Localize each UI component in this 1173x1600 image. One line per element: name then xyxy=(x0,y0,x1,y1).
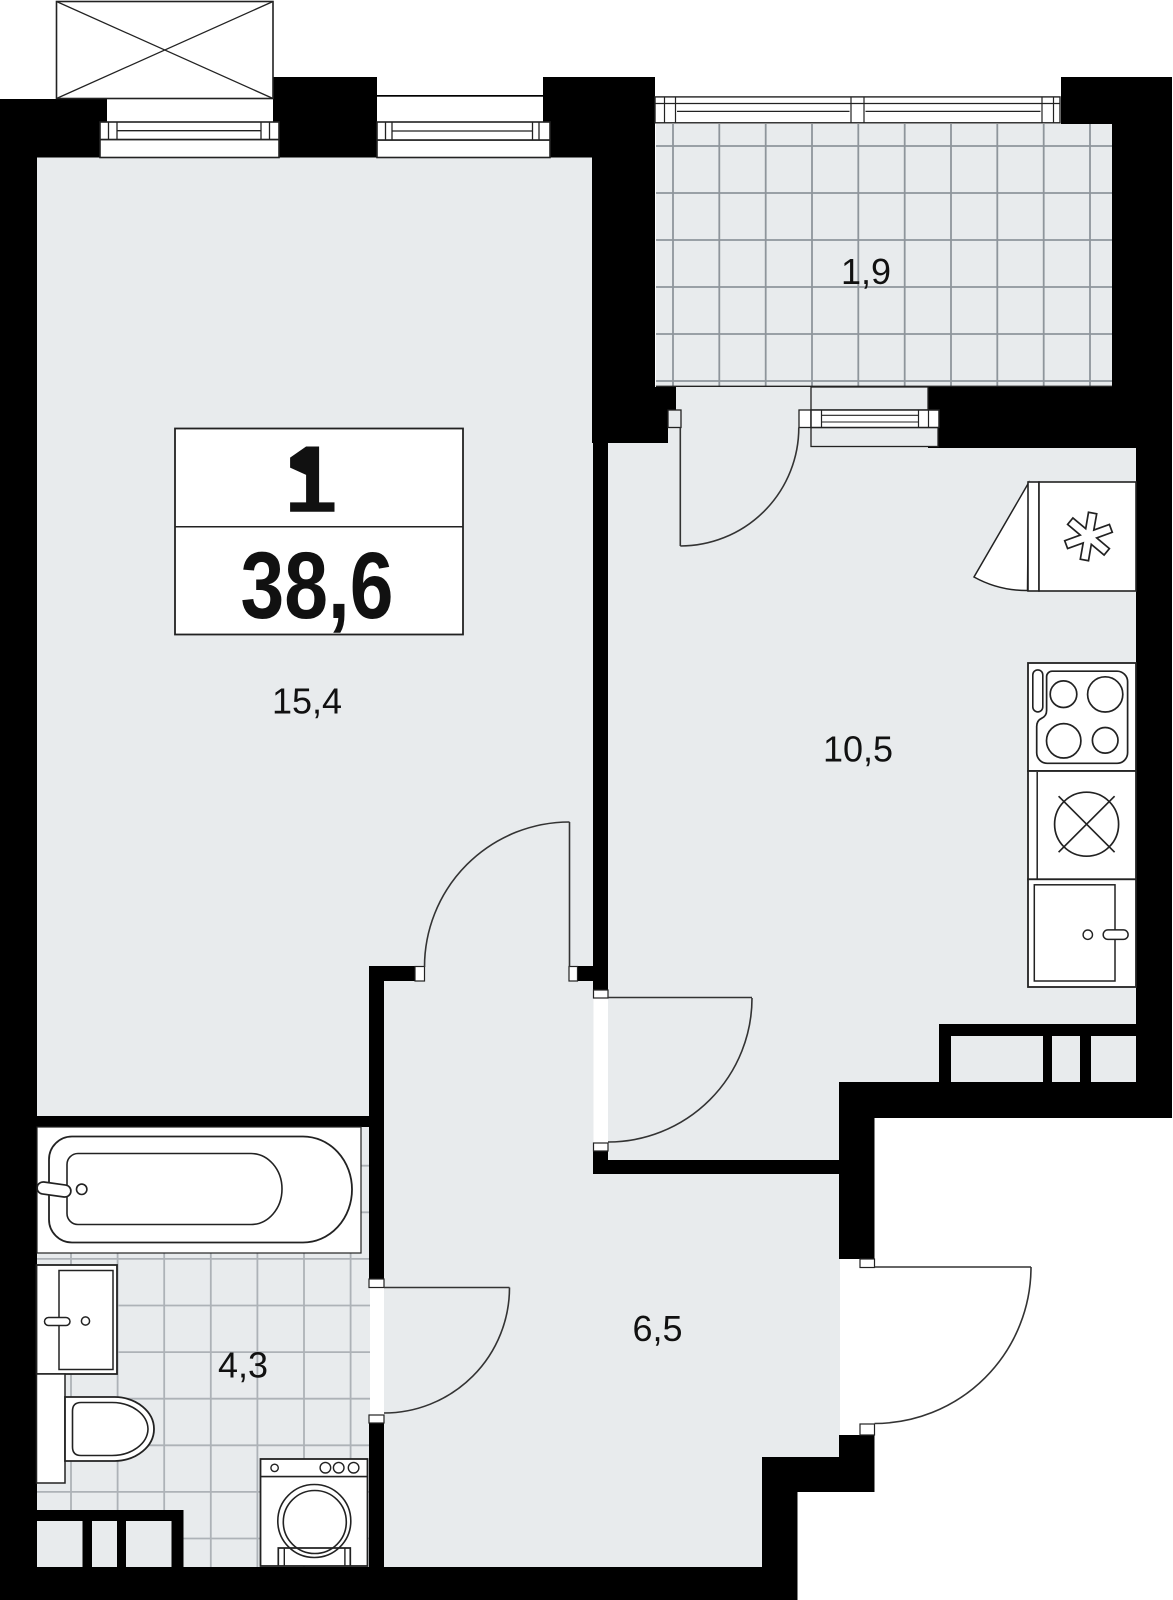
svg-text:1,9: 1,9 xyxy=(841,251,891,292)
svg-text:4,3: 4,3 xyxy=(218,1345,268,1386)
svg-text:38,6: 38,6 xyxy=(241,533,394,639)
svg-text:6,5: 6,5 xyxy=(632,1308,682,1349)
svg-text:15,4: 15,4 xyxy=(272,681,342,722)
svg-text:10,5: 10,5 xyxy=(823,728,893,769)
